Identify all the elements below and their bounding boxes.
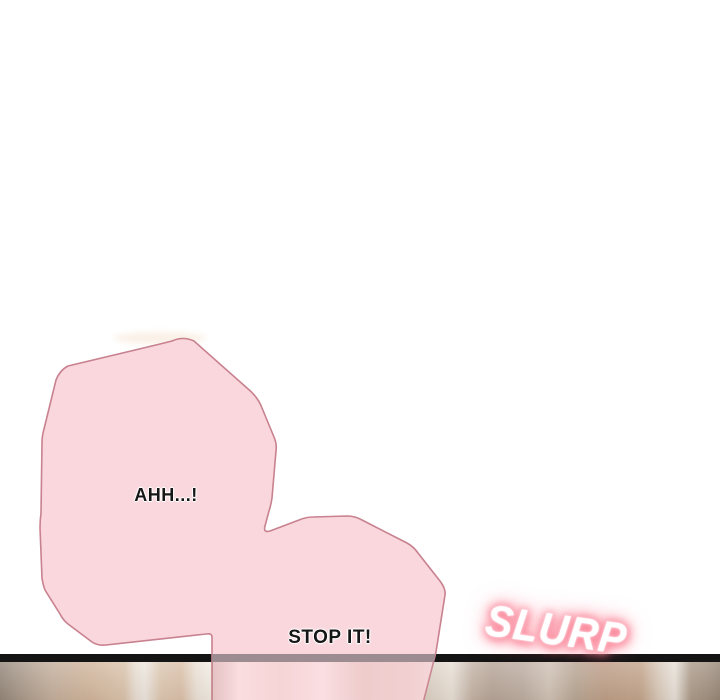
speech-bubbles-graphic — [0, 0, 720, 700]
divider-through-bubble — [205, 654, 450, 662]
speech-text-stop-it: STOP IT! — [258, 628, 402, 647]
comic-panel: AHH...! STOP IT! SLURP — [0, 0, 720, 700]
speech-text-ahh: AHH...! — [106, 486, 226, 504]
scene-showing-through-bubble — [210, 662, 446, 700]
